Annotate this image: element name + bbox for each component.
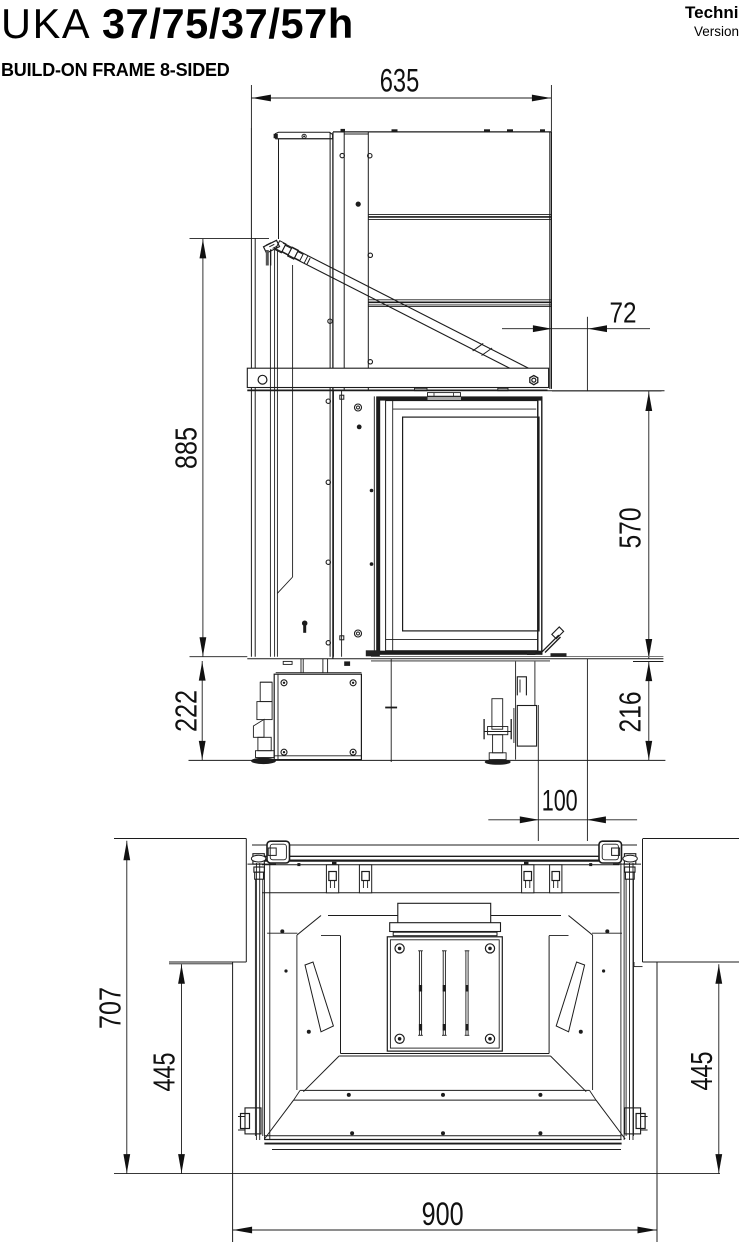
svg-text:707: 707 [93,987,128,1029]
svg-text:72: 72 [610,298,637,330]
svg-text:445: 445 [684,1052,719,1091]
svg-text:570: 570 [613,508,648,549]
svg-text:885: 885 [169,427,204,469]
svg-text:445: 445 [147,1053,182,1092]
svg-text:635: 635 [380,63,420,99]
svg-text:222: 222 [169,690,204,732]
svg-text:900: 900 [422,1196,464,1232]
svg-text:216: 216 [613,692,648,733]
svg-text:100: 100 [542,785,578,818]
